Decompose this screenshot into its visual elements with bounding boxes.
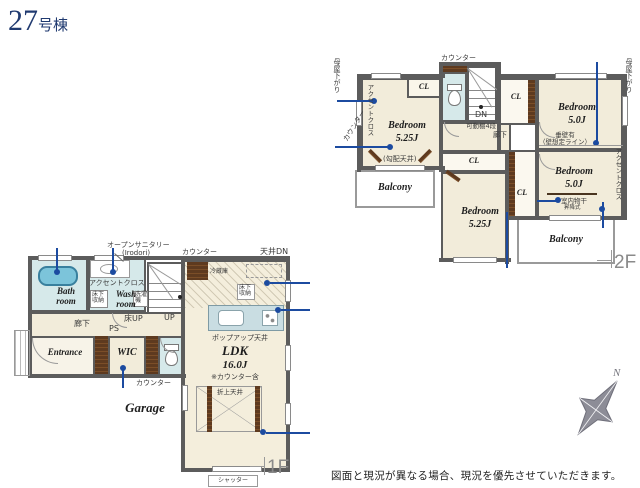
sloped-ceiling-note: (勾配天井) bbox=[383, 155, 416, 163]
annotation-pin-dot bbox=[120, 365, 126, 371]
popup-ceiling-label: ポップアップ天井 bbox=[204, 334, 276, 342]
accent-cloth-label: アクセントクロス bbox=[89, 279, 145, 287]
counter-label: カウンター bbox=[182, 248, 217, 256]
movable-shelf-label: 可動棚4段 bbox=[466, 123, 496, 130]
room-name-bedroom-tl: Bedroom bbox=[377, 120, 437, 132]
room-name-garage: Garage bbox=[113, 401, 177, 416]
closet-label: CL bbox=[441, 156, 507, 165]
balcony-right-label: Balcony bbox=[517, 234, 615, 246]
window bbox=[622, 96, 628, 126]
compass-north-label: N bbox=[613, 367, 620, 379]
sink-icon bbox=[218, 310, 244, 326]
annotation-pin-line bbox=[112, 248, 114, 270]
door-panel bbox=[146, 336, 158, 376]
annotation-pin-line bbox=[335, 146, 389, 148]
fridge-label: 冷蔵庫 bbox=[210, 269, 228, 275]
floor-plan-2f: 母屋下がり カウンター アクセントクロス Bedroom 5.25J (勾配天井… bbox=[335, 60, 637, 288]
annotation-pin-dot bbox=[264, 280, 270, 286]
room-name-entrance: Entrance bbox=[40, 347, 90, 357]
room-name-bath: Bath room bbox=[48, 286, 84, 307]
ceiling-down-label: 天井DN bbox=[260, 247, 288, 256]
open-sanitary-subnote: (Irodori) bbox=[122, 249, 150, 257]
closet-label: CL bbox=[507, 188, 537, 197]
wall bbox=[439, 62, 501, 66]
floor-label-2f: 2F bbox=[614, 252, 636, 274]
room-size-bedroom-mid: 5.25J bbox=[450, 219, 510, 231]
annotation-pin-dot bbox=[275, 307, 281, 313]
annotation-pin-dot bbox=[260, 429, 266, 435]
window bbox=[38, 255, 72, 261]
wall bbox=[28, 374, 186, 378]
beam bbox=[255, 386, 260, 432]
room-name-wash: Wash room bbox=[108, 289, 144, 310]
ceiling-down-zone bbox=[246, 264, 282, 278]
window bbox=[549, 215, 601, 221]
counter-label: カウンター bbox=[136, 379, 171, 387]
counter-label: カウンター bbox=[441, 54, 476, 62]
hallway-1f bbox=[30, 312, 183, 338]
wall bbox=[535, 74, 539, 220]
annotation-pin-dot bbox=[387, 144, 393, 150]
window bbox=[555, 73, 607, 79]
annotation-pin-line bbox=[122, 370, 124, 388]
hallway-label: 廊下 bbox=[493, 131, 507, 139]
up-label: UP bbox=[164, 313, 175, 322]
compass-rose bbox=[554, 368, 638, 452]
annotation-pin-dot bbox=[599, 206, 605, 212]
accent-cloth-label: アクセントクロス bbox=[366, 84, 373, 144]
room-size-bedroom-tl: 5.25J bbox=[377, 133, 437, 145]
page-title: 27号棟 bbox=[8, 4, 68, 38]
window bbox=[371, 73, 401, 79]
window bbox=[182, 385, 188, 411]
indoor-drying-subnote: 昇降式 bbox=[564, 206, 581, 212]
room-size-bedroom-tr: 5.0J bbox=[547, 115, 607, 127]
drawing-tick bbox=[597, 260, 611, 261]
accent-cloth-label: アクセントクロス bbox=[614, 148, 621, 200]
wall bbox=[181, 258, 185, 472]
moya-sagari-label: 母屋下がり bbox=[625, 58, 633, 93]
ldk-note: ※カウンター含 bbox=[203, 373, 267, 381]
annotation-pin-line bbox=[281, 309, 310, 311]
stair-direction-dot bbox=[479, 105, 483, 109]
window bbox=[453, 257, 497, 263]
dn-label: DN bbox=[475, 110, 487, 119]
wall bbox=[181, 256, 290, 260]
moya-sagari-label: 母屋下がり bbox=[333, 58, 341, 93]
shutter-label: シャッター bbox=[210, 478, 256, 484]
underfloor-storage-label: 床下収納 bbox=[239, 285, 253, 298]
annotation-pin-dot bbox=[110, 269, 116, 275]
underfloor-storage-label: 床下収納 bbox=[92, 292, 106, 305]
disclaimer-text: 図面と現況が異なる場合、現況を優先させていただきます。 bbox=[331, 468, 622, 483]
coffered-ceiling-label: 折上天井 bbox=[212, 389, 248, 396]
drawing-tick bbox=[264, 457, 265, 475]
room-name-bedroom-mid: Bedroom bbox=[450, 206, 510, 218]
open-sanitary-label: オープンサニタリー bbox=[107, 241, 170, 249]
annotation-pin-line bbox=[270, 282, 310, 284]
closet-label: CL bbox=[501, 92, 531, 101]
stair-direction-dot bbox=[178, 295, 182, 299]
laundry-pole-bar bbox=[547, 193, 597, 195]
building-suffix: 号棟 bbox=[38, 18, 68, 34]
annotation-pin-line bbox=[56, 248, 58, 270]
closet-door-panel bbox=[528, 80, 535, 123]
room-size-bedroom-br: 5.0J bbox=[544, 179, 604, 191]
floor-up-label: 床UP bbox=[124, 314, 143, 323]
balcony-left-label: Balcony bbox=[355, 182, 435, 194]
ps-label: PS bbox=[109, 324, 119, 333]
room-name-wic: WIC bbox=[108, 347, 146, 359]
floor-plan-1f: 床下収納 床下収納 洗濯機 シャッター オープンサニタリー (Irodori) … bbox=[12, 235, 312, 485]
drawing-tick bbox=[250, 466, 264, 467]
annotation-pin-dot bbox=[54, 269, 60, 275]
hallway-label: 廊下 bbox=[74, 319, 90, 328]
kitchen-counter bbox=[187, 262, 208, 280]
drawing-tick bbox=[611, 250, 612, 268]
floor-label-1f: 1F bbox=[267, 457, 289, 479]
toilet-tank-icon bbox=[447, 84, 462, 91]
door-panel bbox=[95, 336, 108, 376]
toilet-icon bbox=[448, 90, 461, 106]
window bbox=[285, 403, 291, 425]
room-name-ldk: LDK bbox=[205, 344, 265, 359]
indoor-drying-label: 室内物干 bbox=[561, 198, 587, 205]
hanging-wall-subnote: （壁想定ライン） bbox=[531, 139, 599, 146]
window bbox=[375, 165, 425, 171]
porch-steps bbox=[14, 330, 30, 376]
room-size-ldk: 16.0J bbox=[205, 359, 265, 372]
room-name-bedroom-tr: Bedroom bbox=[547, 102, 607, 114]
annotation-pin-line bbox=[266, 432, 310, 434]
building-number: 27 bbox=[8, 4, 38, 37]
window bbox=[285, 345, 291, 371]
closet-label: CL bbox=[407, 82, 441, 91]
room-name-bedroom-br: Bedroom bbox=[544, 166, 604, 178]
